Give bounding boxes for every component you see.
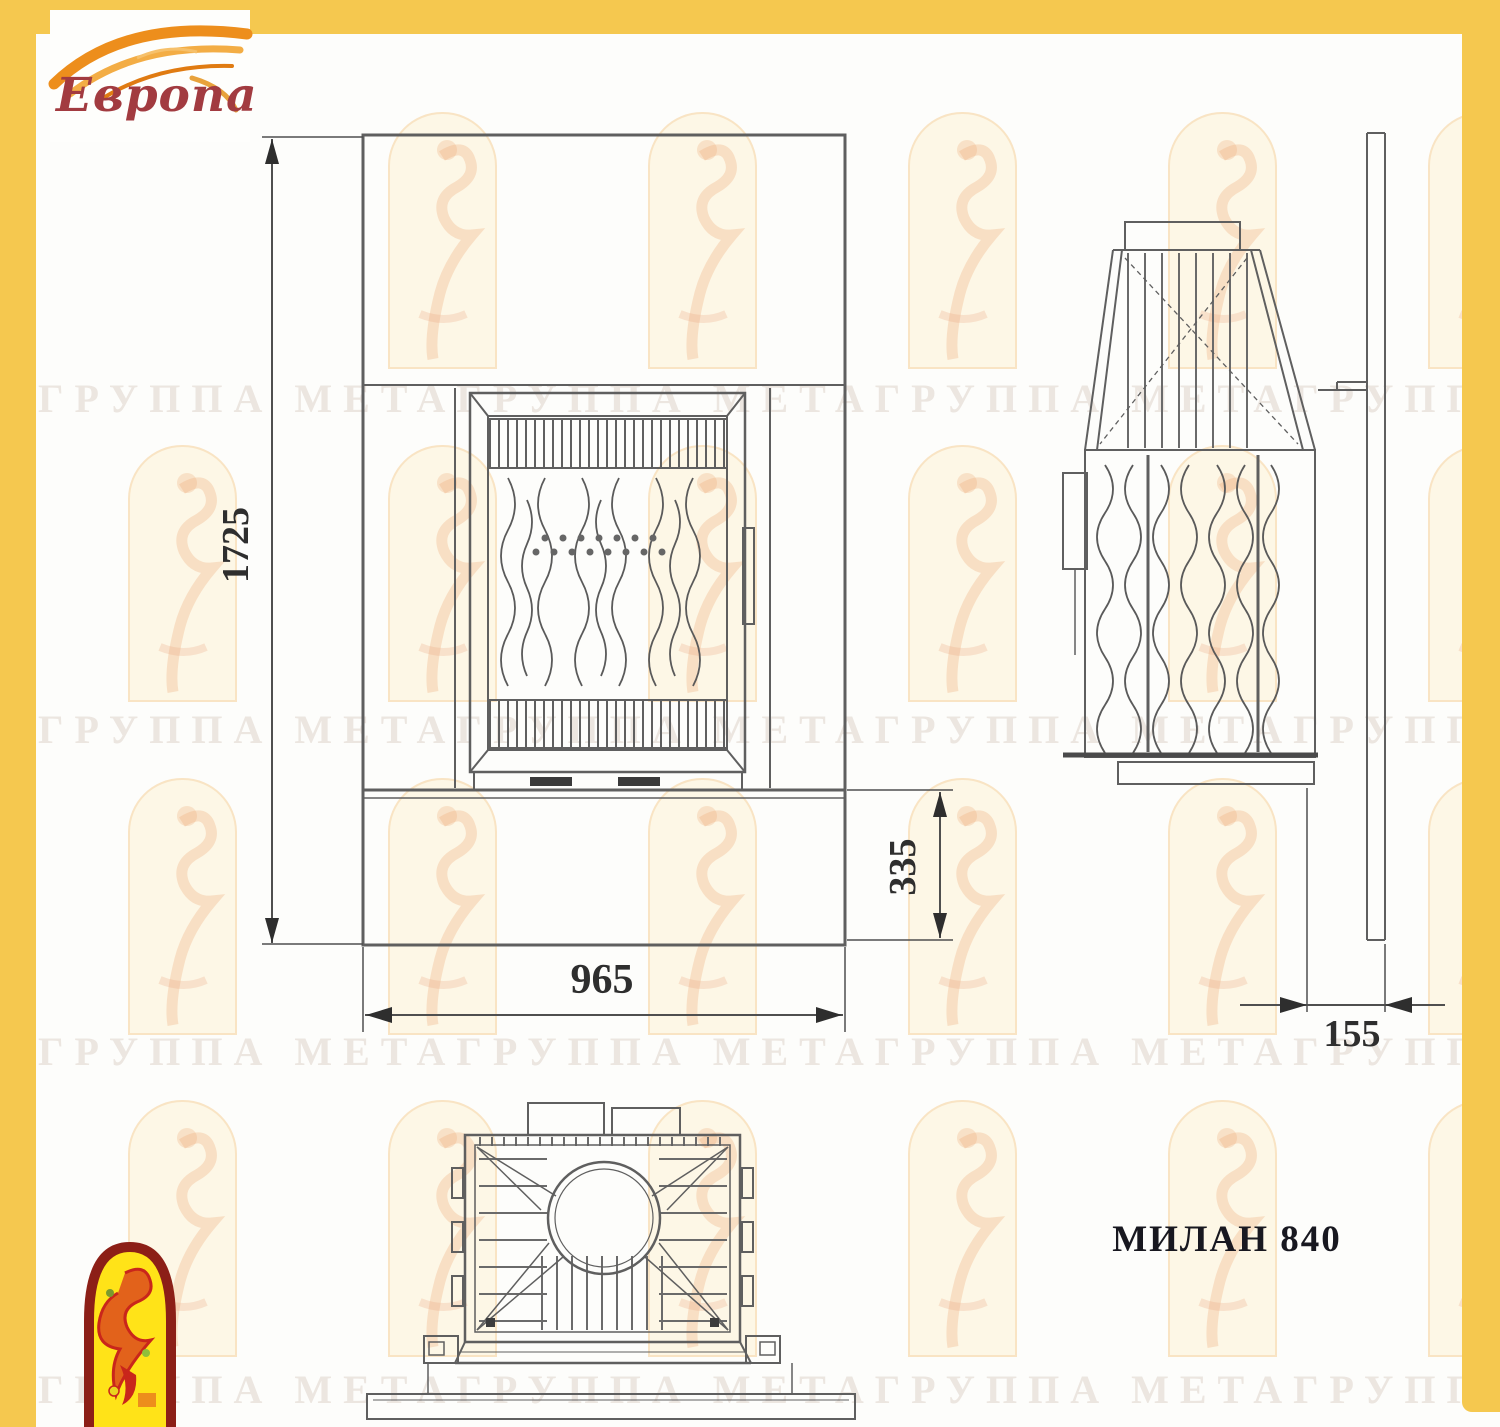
side-view [1063,133,1385,940]
front-view [363,135,845,945]
flame-lines [501,478,700,686]
model-name: МИЛАН 840 [1062,1218,1392,1261]
catalog-page: ГРУППА МЕТАГРУППА МЕТАГРУППА МЕТАГРУППА … [0,0,1500,1427]
frame-left [0,0,36,1427]
brand-logo: Европа [56,68,256,123]
corner-wedges [477,1147,728,1330]
top-view [367,1103,855,1419]
wall-panel [1367,133,1385,940]
ember-dots [533,535,666,556]
side-wave-lines [1097,465,1279,753]
dim-front-width: 965 [502,956,702,1004]
dim-side-depth: 155 [1272,1012,1432,1056]
convection-outlet [1063,473,1087,569]
dim-base-height: 335 [881,787,925,947]
side-tabs [452,1168,753,1306]
dimension-lines [262,137,1445,1032]
technical-drawing [0,0,1500,1427]
frame-right [1462,0,1500,1412]
dim-front-height: 1725 [214,465,258,625]
fire-dancer-icon [80,1235,180,1427]
